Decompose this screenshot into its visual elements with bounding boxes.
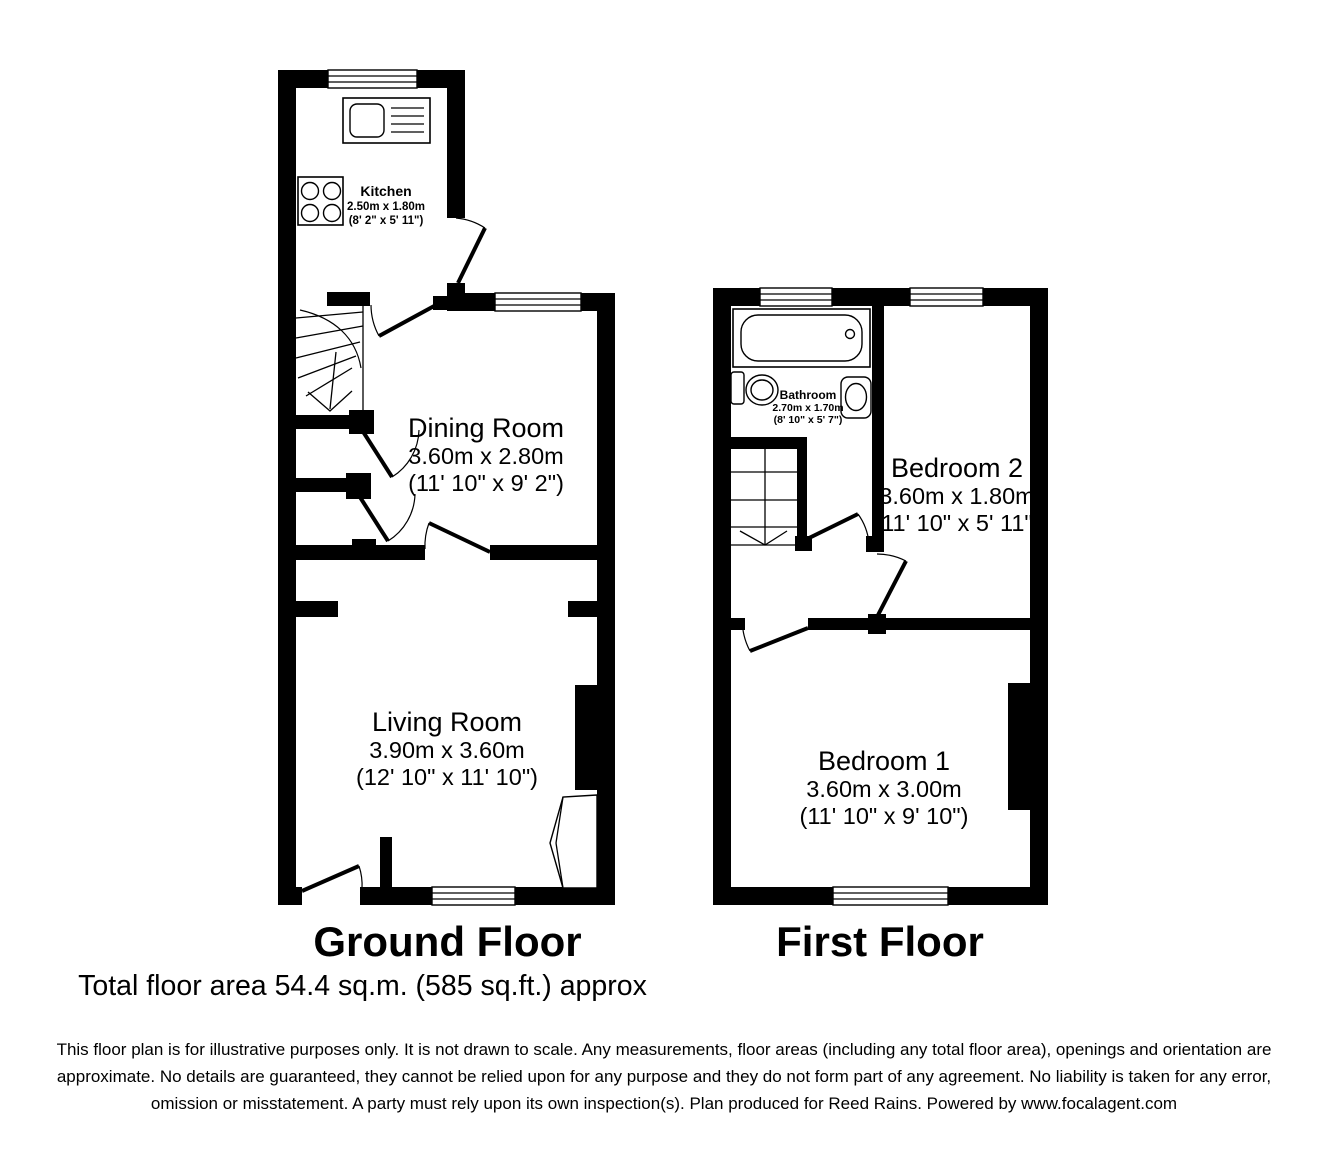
bedroom2-name: Bedroom 2 [891,453,1023,483]
living-metric: 3.90m x 3.60m [369,737,524,763]
floor-plan-page: { "ground_floor": { "title": "Ground Flo… [0,0,1328,1151]
living-room-door [425,523,490,552]
kitchen-window [328,70,417,88]
bedroom1-door [743,628,808,651]
bedroom1-label: Bedroom 1 3.60m x 3.00m (11' 10" x 9' 10… [800,746,969,829]
first-floor-plan: Bathroom 2.70m x 1.70m (8' 10" x 5' 7") … [705,280,1055,912]
living-imperial: (12' 10" x 11' 10") [356,764,538,790]
kitchen-imperial: (8' 2" x 5' 11") [349,215,424,227]
bathroom-metric: 2.70m x 1.70m [772,402,843,414]
basin [841,377,871,418]
dining-name: Dining Room [408,413,564,443]
ground-stairs [296,306,363,420]
toilet [731,372,778,405]
bathroom-window [760,288,832,306]
bath-tub [733,309,870,367]
total-floor-area: Total floor area 54.4 sq.m. (585 sq.ft.)… [40,970,685,1003]
dining-metric: 3.60m x 2.80m [408,443,563,469]
bathroom-imperial: (8' 10" x 5' 7") [774,414,843,426]
bedroom2-door [877,554,906,617]
living-name: Living Room [372,707,522,737]
ground-floor-title: Ground Floor [270,918,625,966]
living-window [432,887,515,905]
first-floor-title: First Floor [705,918,1055,966]
hob [298,177,343,225]
hall-door-lower [358,494,415,541]
kitchen-dining-door [371,305,436,336]
fireplace [550,795,597,888]
bedroom2-metric: 3.60m x 1.80m [879,483,1034,509]
bedroom1-metric: 3.60m x 3.00m [806,776,961,802]
bathroom-door [805,514,869,543]
kitchen-metric: 2.50m x 1.80m [347,201,425,213]
bathroom-name: Bathroom [780,388,837,402]
dining-room-label: Dining Room 3.60m x 2.80m (11' 10" x 9' … [408,413,564,496]
front-door [302,866,362,891]
dining-imperial: (11' 10" x 9' 2") [408,470,564,496]
kitchen-label: Kitchen 2.50m x 1.80m (8' 2" x 5' 11") [347,183,425,227]
bedroom2-imperial: (11' 10" x 5' 11") [873,510,1040,536]
ground-floor-plan: Kitchen 2.50m x 1.80m (8' 2" x 5' 11") D… [270,62,625,912]
kitchen-side-door [456,218,485,283]
first-stairs [731,449,797,545]
bedroom1-name: Bedroom 1 [818,746,950,776]
bedroom1-imperial: (11' 10" x 9' 10") [800,803,969,829]
bedroom2-window [910,288,983,306]
bedroom2-label: Bedroom 2 3.60m x 1.80m (11' 10" x 5' 11… [873,453,1040,536]
kitchen-name: Kitchen [360,183,411,199]
bathroom-label: Bathroom 2.70m x 1.70m (8' 10" x 5' 7") [772,388,843,426]
sink-unit [343,98,430,143]
living-room-label: Living Room 3.90m x 3.60m (12' 10" x 11'… [356,707,538,790]
disclaimer-text: This floor plan is for illustrative purp… [46,1036,1282,1117]
dining-window [495,293,581,311]
bedroom1-window [833,887,948,905]
